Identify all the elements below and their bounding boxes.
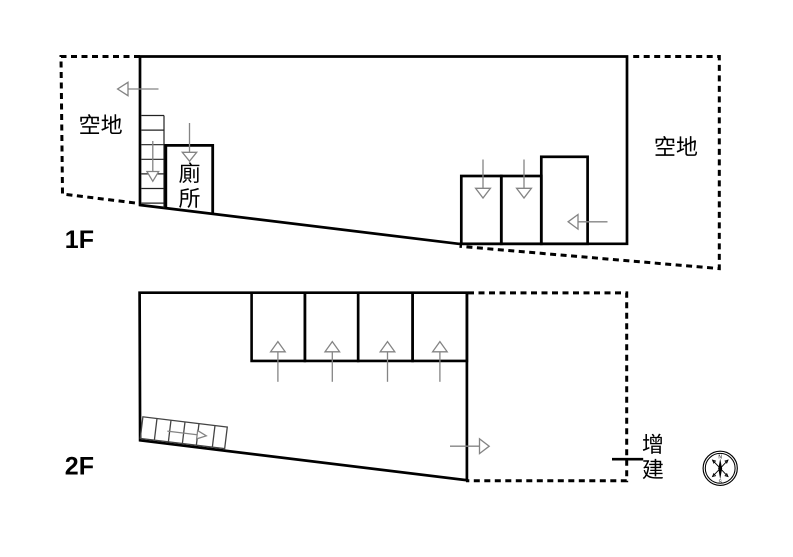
svg-text:1F: 1F	[65, 226, 94, 254]
svg-text:2F: 2F	[65, 453, 94, 481]
